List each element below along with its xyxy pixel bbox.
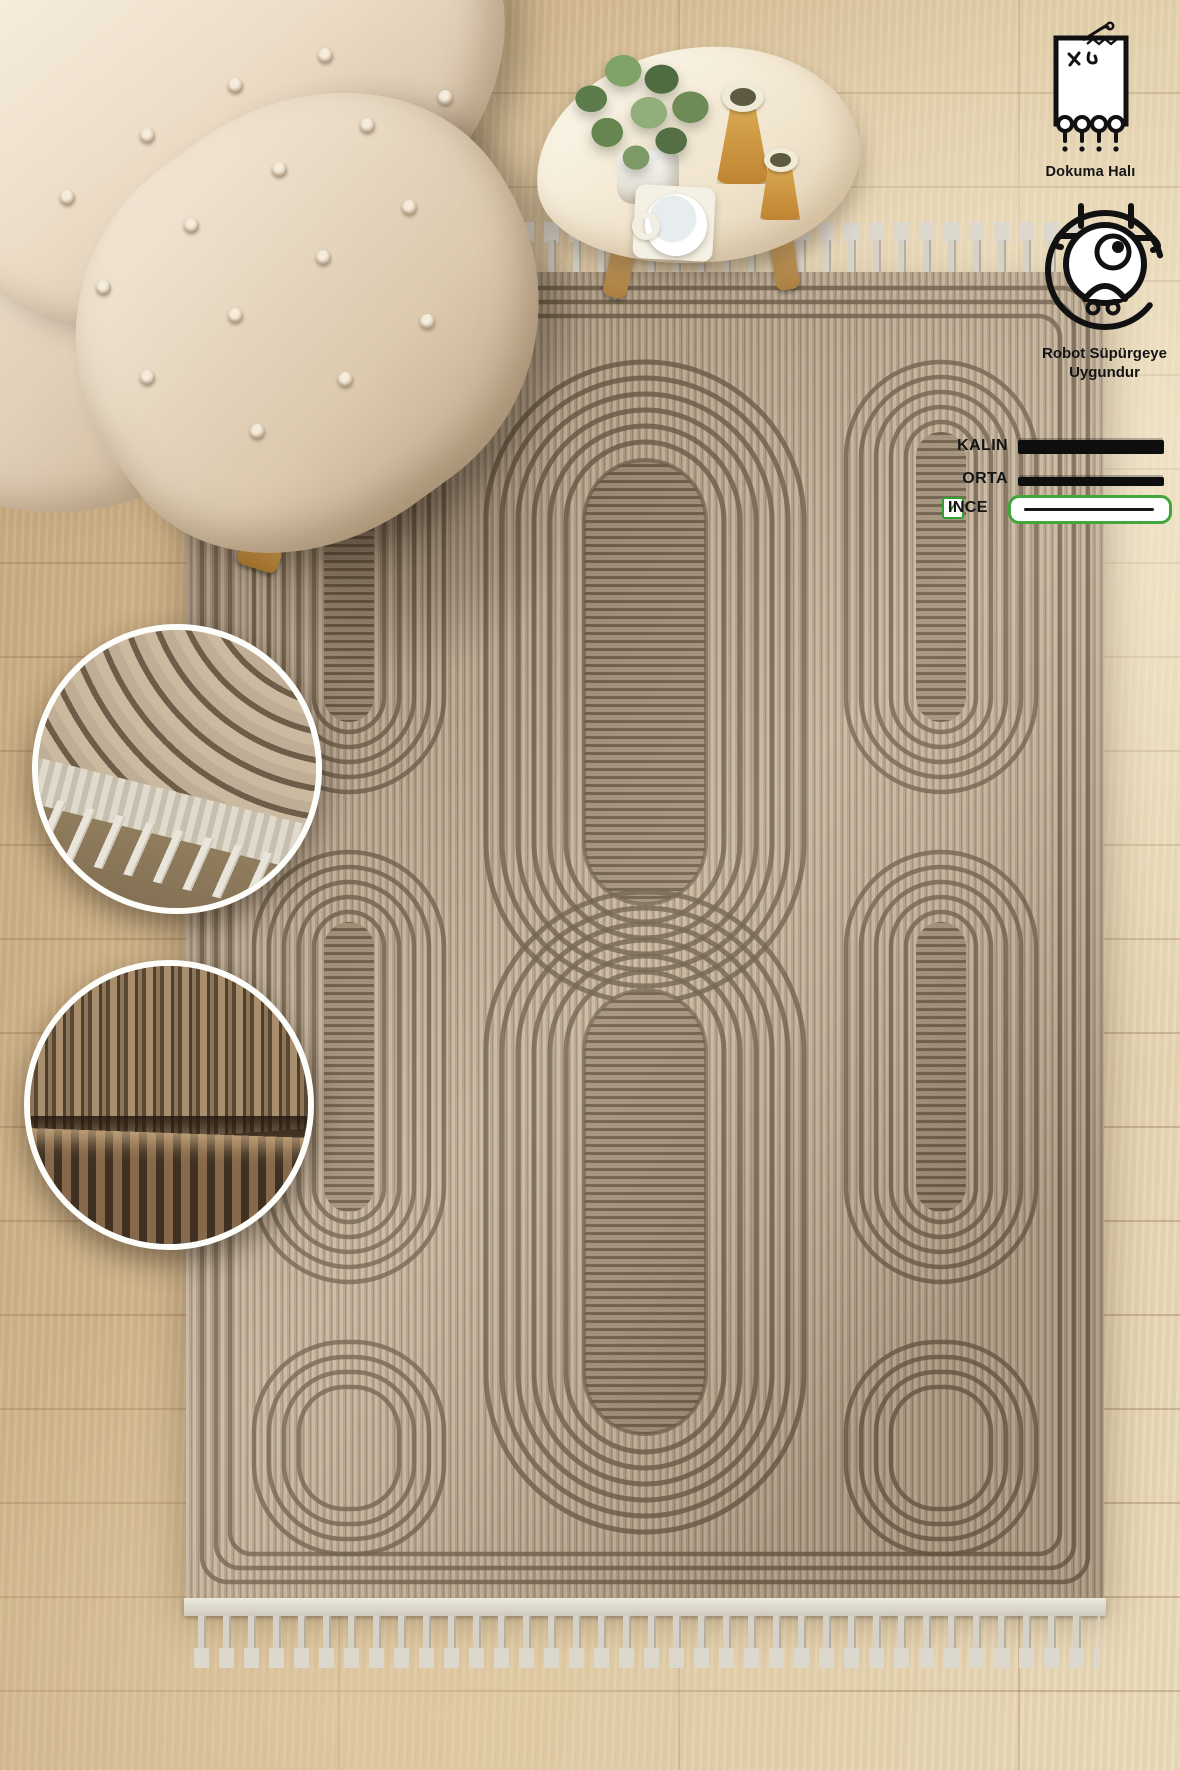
robot-vacuum-badge: Robot Süpürgeye Uygundur (1022, 198, 1180, 383)
robot-vacuum-icon (1035, 198, 1175, 338)
tuft-button (140, 370, 155, 385)
tuft-button (420, 314, 435, 329)
product-photo-stage: Dokuma Halı Robot Süpürgeye Uygundur KAL… (0, 0, 1180, 1770)
tuft-button (318, 48, 333, 63)
tuft-button (272, 162, 287, 177)
legend-bar-thin-frame (1008, 495, 1172, 524)
woven-badge-label: Dokuma Halı (1008, 164, 1173, 180)
mug-handle (632, 212, 660, 240)
legend-bar-thick (1018, 440, 1164, 454)
fringe-stems (190, 1616, 1100, 1650)
tuft-button (184, 218, 199, 233)
robot-badge-line1: Robot Süpürgeye (1022, 345, 1180, 364)
rug-fringe-bottom (190, 1616, 1100, 1668)
detail-inset-rug-corner (32, 624, 322, 914)
detail-inset-folded-rug (24, 960, 314, 1250)
green-plant (556, 40, 716, 180)
robot-badge-line2: Uygundur (1022, 364, 1180, 383)
legend-label-ince: INCE (948, 499, 1002, 517)
legend-bar-thin (1024, 508, 1154, 511)
woven-rug-badge: Dokuma Halı (1008, 20, 1173, 180)
robot-badge-label: Robot Süpürgeye Uygundur (1022, 345, 1180, 383)
woven-rug-icon (1049, 20, 1133, 156)
rug-edge-band (184, 1598, 1106, 1616)
tuft-button (60, 190, 75, 205)
legend-bar-medium (1018, 477, 1164, 486)
vase-opening (770, 153, 791, 167)
tuft-button (250, 424, 265, 439)
tuft-button (140, 128, 155, 143)
legend-label-kalin: KALIN (942, 437, 1008, 455)
tuft-button (316, 250, 331, 265)
rug-fold (24, 1127, 314, 1250)
tuft-button (360, 118, 375, 133)
fringe-flares (190, 1648, 1100, 1668)
legend-label-orta: ORTA (942, 470, 1008, 488)
tuft-button (228, 78, 243, 93)
tuft-button (402, 200, 417, 215)
tuft-button (228, 308, 243, 323)
tuft-button (96, 280, 111, 295)
vase-opening (730, 88, 756, 106)
tuft-button (438, 90, 453, 105)
tuft-button (338, 372, 353, 387)
